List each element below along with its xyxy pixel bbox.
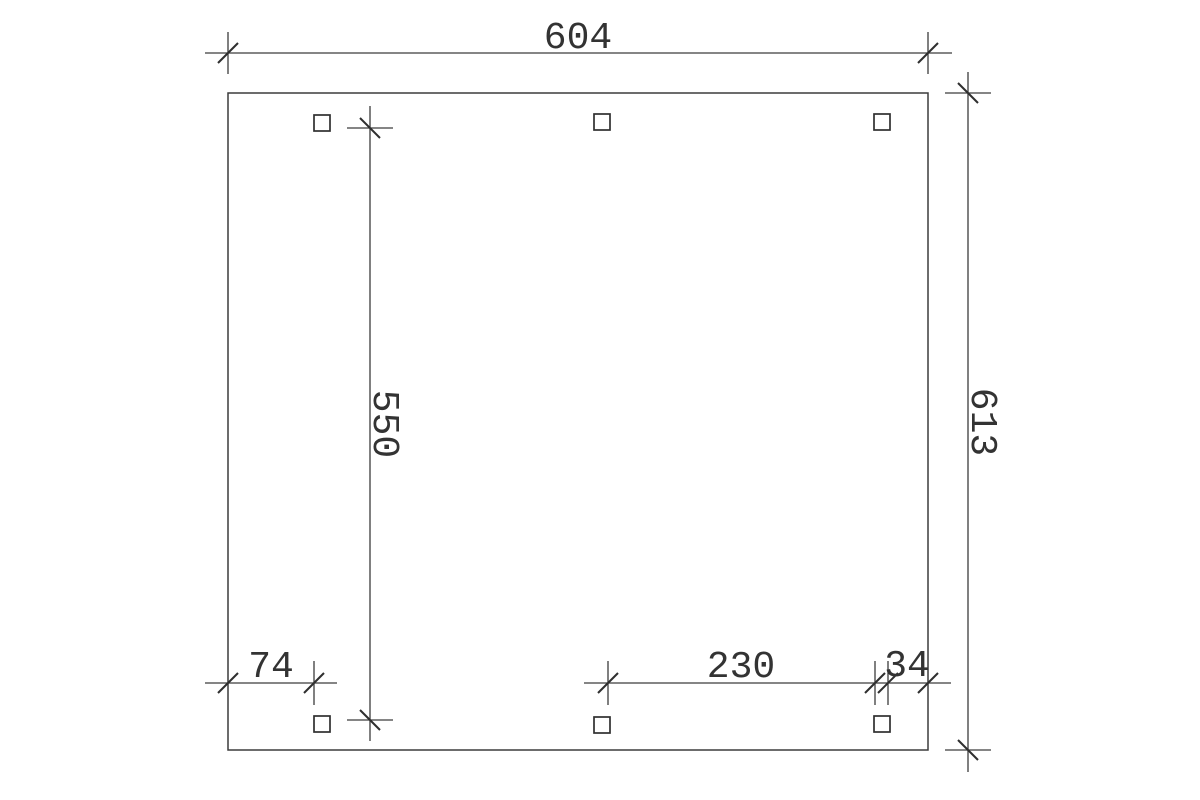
dimension-right-height: 613 bbox=[945, 72, 1003, 772]
post-top-left bbox=[314, 115, 330, 131]
dimension-bottom-left: 74 bbox=[205, 646, 337, 705]
dimension-label-bottom-left: 74 bbox=[248, 646, 294, 689]
dimension-label-top: 604 bbox=[544, 17, 612, 60]
post-bottom-left bbox=[314, 716, 330, 732]
dimension-label-right: 613 bbox=[960, 388, 1003, 456]
post-top-center bbox=[594, 114, 610, 130]
dimension-bottom-center: 230 34 bbox=[584, 645, 951, 705]
plan-svg: 604 613 550 74 bbox=[0, 0, 1200, 800]
post-top-right bbox=[874, 114, 890, 130]
dimension-label-inner: 550 bbox=[362, 390, 405, 458]
plan-outline bbox=[228, 93, 928, 750]
post-bottom-right bbox=[874, 716, 890, 732]
post-bottom-center bbox=[594, 717, 610, 733]
dimension-label-bottom-center: 230 bbox=[707, 646, 775, 689]
dimension-inner-vertical: 550 bbox=[347, 106, 405, 741]
dimension-label-bottom-right: 34 bbox=[884, 645, 930, 688]
dimension-top-width: 604 bbox=[205, 17, 952, 74]
drawing-canvas: 604 613 550 74 bbox=[0, 0, 1200, 800]
